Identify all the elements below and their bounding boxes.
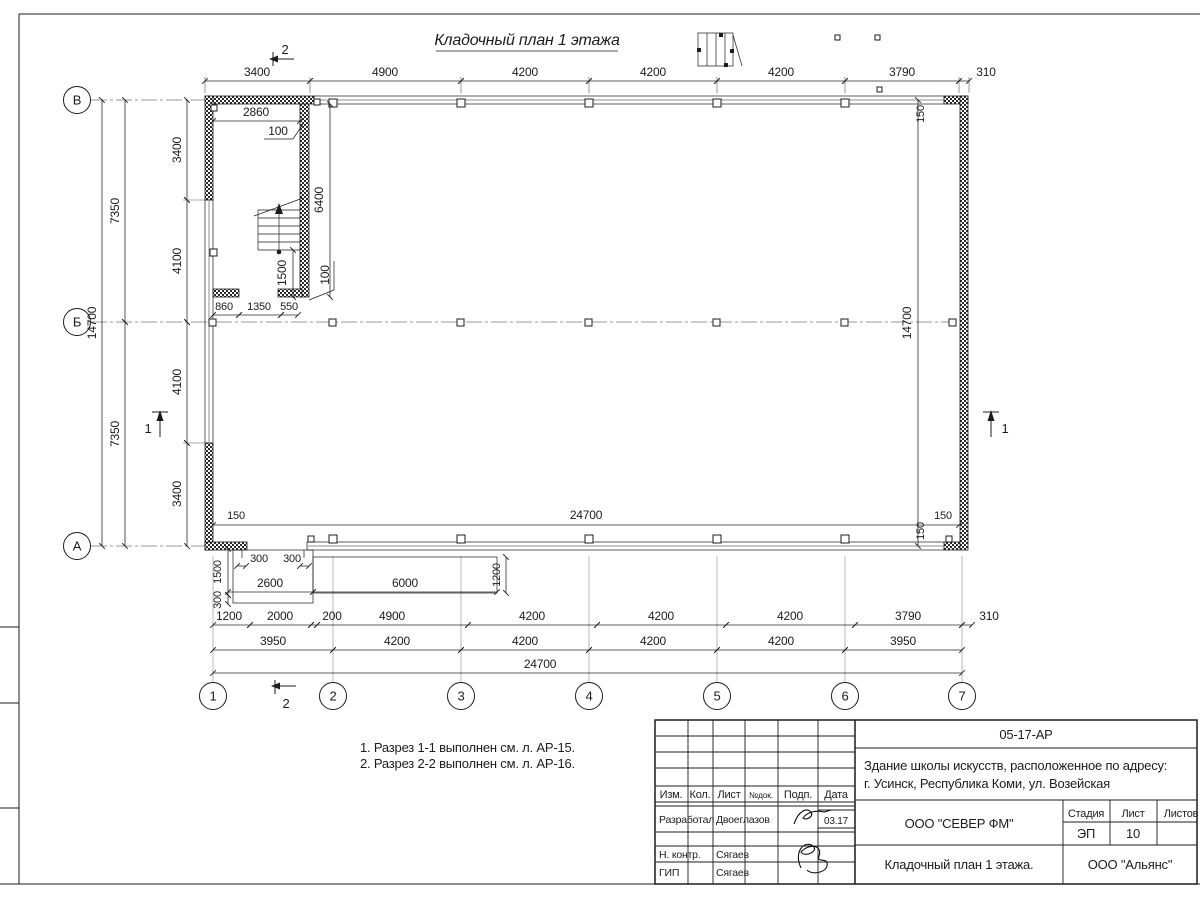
dim-chain-right: 14700 150 150 — [900, 100, 927, 546]
tb-sheet-label: Лист — [1121, 808, 1144, 820]
axis-col-3: 3 — [457, 689, 464, 704]
tb-project-line2: г. Усинск, Республика Коми, ул. Возейска… — [864, 776, 1110, 791]
stray-column-marks — [835, 35, 882, 92]
tb-col-izm: Изм. — [660, 789, 683, 801]
drawing-sheet: Кладочный план 1 этажа — [0, 0, 1200, 900]
tb-col-ndok: №док. — [749, 790, 773, 800]
dim-door-1350: 1350 — [247, 301, 271, 313]
tb-date-developer: 03.17 — [824, 816, 849, 827]
tb-drawing-title: Кладочный план 1 этажа. — [885, 857, 1034, 872]
dim-top-4200b: 4200 — [640, 65, 666, 79]
tb-name-gip: Сягаев — [716, 867, 750, 879]
tb-col-kol: Кол. — [690, 789, 711, 801]
dim-chain-bottom-c: 24700 — [213, 657, 962, 673]
dim-b-4200d: 4200 — [768, 634, 794, 648]
tb-col-data: Дата — [824, 789, 849, 801]
dim-c-24700: 24700 — [524, 657, 557, 671]
dim-b-3950b: 3950 — [890, 634, 916, 648]
dim-room-2860: 2860 — [243, 105, 269, 119]
dim-left-7350a: 7350 — [108, 198, 122, 224]
dim-interior-24700: 24700 — [570, 508, 603, 522]
tb-doc-number: 05-17-АР — [999, 727, 1052, 742]
axis-row-v: В — [73, 93, 81, 108]
axis-col-6: 6 — [841, 689, 848, 704]
dim-porch-300a: 300 — [250, 553, 268, 565]
section-1-label-left: 1 — [144, 421, 151, 436]
tb-role-developer: Разработал — [659, 814, 714, 826]
dim-a-2000: 2000 — [267, 609, 293, 623]
dim-a-4200c: 4200 — [777, 609, 803, 623]
tb-contractor: ООО "Альянс" — [1088, 857, 1173, 872]
dim-b-4200b: 4200 — [512, 634, 538, 648]
dim-top-4200a: 4200 — [512, 65, 538, 79]
dim-b-3950a: 3950 — [260, 634, 286, 648]
stair-symbol-icon — [697, 33, 742, 67]
page-title: Кладочный план 1 этажа — [434, 32, 620, 49]
section-2-label-bottom: 2 — [282, 696, 289, 711]
dim-chains-left: 3400 4100 4100 3400 7350 7350 14700 — [85, 100, 205, 546]
window-bands — [205, 96, 944, 550]
dim-left-3400b: 3400 — [170, 481, 184, 507]
axis-col-2: 2 — [329, 689, 336, 704]
tb-name-developer: Двоеглазов — [716, 814, 770, 826]
dim-150-br: 150 — [934, 510, 952, 522]
dim-chain-bottom-b: 3950 4200 4200 4200 4200 3950 — [213, 634, 962, 650]
tb-col-list: Лист — [717, 789, 740, 801]
column-markers — [209, 99, 956, 543]
tb-company: ООО "СЕВЕР ФМ" — [905, 816, 1014, 831]
title-block: Изм. Кол. Лист №док. Подп. Дата Разработ… — [655, 720, 1199, 884]
dim-door-550: 550 — [280, 301, 298, 313]
tb-project-line1: Здание школы искусств, расположенное по … — [864, 758, 1167, 773]
notes: 1. Разрез 1-1 выполнен см. л. АР-15. 2. … — [360, 740, 575, 771]
dim-interior-width: 24700 150 150 — [213, 508, 959, 525]
dim-ramp-6000: 6000 — [392, 576, 418, 590]
dim-a-200: 200 — [322, 609, 342, 623]
axis-row-b: Б — [73, 315, 81, 330]
section-2-label-top: 2 — [281, 42, 288, 57]
dim-porch-2600: 2600 — [257, 576, 283, 590]
dim-ramp-1200: 1200 — [491, 563, 503, 587]
dim-porch: 300 300 2600 6000 1200 1500 300 — [212, 549, 506, 609]
dim-a-4200b: 4200 — [648, 609, 674, 623]
tb-stage-value: ЭП — [1077, 826, 1095, 841]
dim-right-150-top: 150 — [915, 105, 927, 123]
note-1: 1. Разрез 1-1 выполнен см. л. АР-15. — [360, 740, 575, 755]
dim-left-14700: 14700 — [85, 306, 99, 339]
dim-top-310: 310 — [976, 65, 996, 79]
dim-a-310: 310 — [979, 609, 999, 623]
tb-col-podp: Подп. — [784, 789, 812, 801]
floor-plan-svg: Кладочный план 1 этажа — [0, 0, 1200, 900]
dim-stair-1500: 1500 — [275, 260, 289, 286]
dim-chain-bottom-a: 1200 2000 200 4900 4200 4200 4200 3790 3… — [213, 609, 999, 625]
dim-left-3400a: 3400 — [170, 137, 184, 163]
axis-col-5: 5 — [713, 689, 720, 704]
axis-col-1: 1 — [209, 689, 216, 704]
dim-left-4100a: 4100 — [170, 248, 184, 274]
dim-a-4900: 4900 — [379, 609, 405, 623]
axis-col-7: 7 — [958, 689, 965, 704]
dim-150-bl: 150 — [227, 510, 245, 522]
staircase — [254, 198, 303, 254]
dim-door-860: 860 — [215, 301, 233, 313]
dim-top-4900: 4900 — [372, 65, 398, 79]
tb-stage-label: Стадия — [1068, 808, 1105, 820]
dim-top-3400: 3400 — [244, 65, 270, 79]
dim-porch-300v: 300 — [212, 591, 224, 609]
tb-sheets-label: Листов — [1164, 808, 1199, 820]
dim-right-14700: 14700 — [900, 306, 914, 339]
dim-left-4100b: 4100 — [170, 369, 184, 395]
axis-row-a: А — [73, 539, 82, 554]
dim-a-4200a: 4200 — [519, 609, 545, 623]
dim-room-100: 100 — [268, 124, 288, 138]
dim-top-3790: 3790 — [889, 65, 915, 79]
signature-gip — [798, 844, 827, 872]
dim-room-6400: 6400 — [312, 187, 326, 213]
tb-role-ncontrol: Н. контр. — [659, 849, 701, 861]
tb-name-ncontrol: Сягаев — [716, 849, 750, 861]
dim-room: 2860 100 6400 1500 100 860 1350 550 — [213, 104, 334, 315]
dim-partition-100: 100 — [318, 265, 332, 285]
axis-col-4: 4 — [585, 689, 592, 704]
dim-top-4200c: 4200 — [768, 65, 794, 79]
dim-b-4200a: 4200 — [384, 634, 410, 648]
dim-porch-300b: 300 — [283, 553, 301, 565]
dim-left-7350b: 7350 — [108, 421, 122, 447]
drawing-title-header: Кладочный план 1 этажа — [434, 32, 620, 51]
dim-a-1200: 1200 — [216, 609, 242, 623]
note-2: 2. Разрез 2-2 выполнен см. л. АР-16. — [360, 756, 575, 771]
tb-role-gip: ГИП — [659, 867, 679, 879]
tb-sheet-value: 10 — [1126, 826, 1140, 841]
dim-porch-1500: 1500 — [212, 560, 224, 584]
dim-a-3790: 3790 — [895, 609, 921, 623]
section-1-label-right: 1 — [1001, 421, 1008, 436]
dim-b-4200c: 4200 — [640, 634, 666, 648]
